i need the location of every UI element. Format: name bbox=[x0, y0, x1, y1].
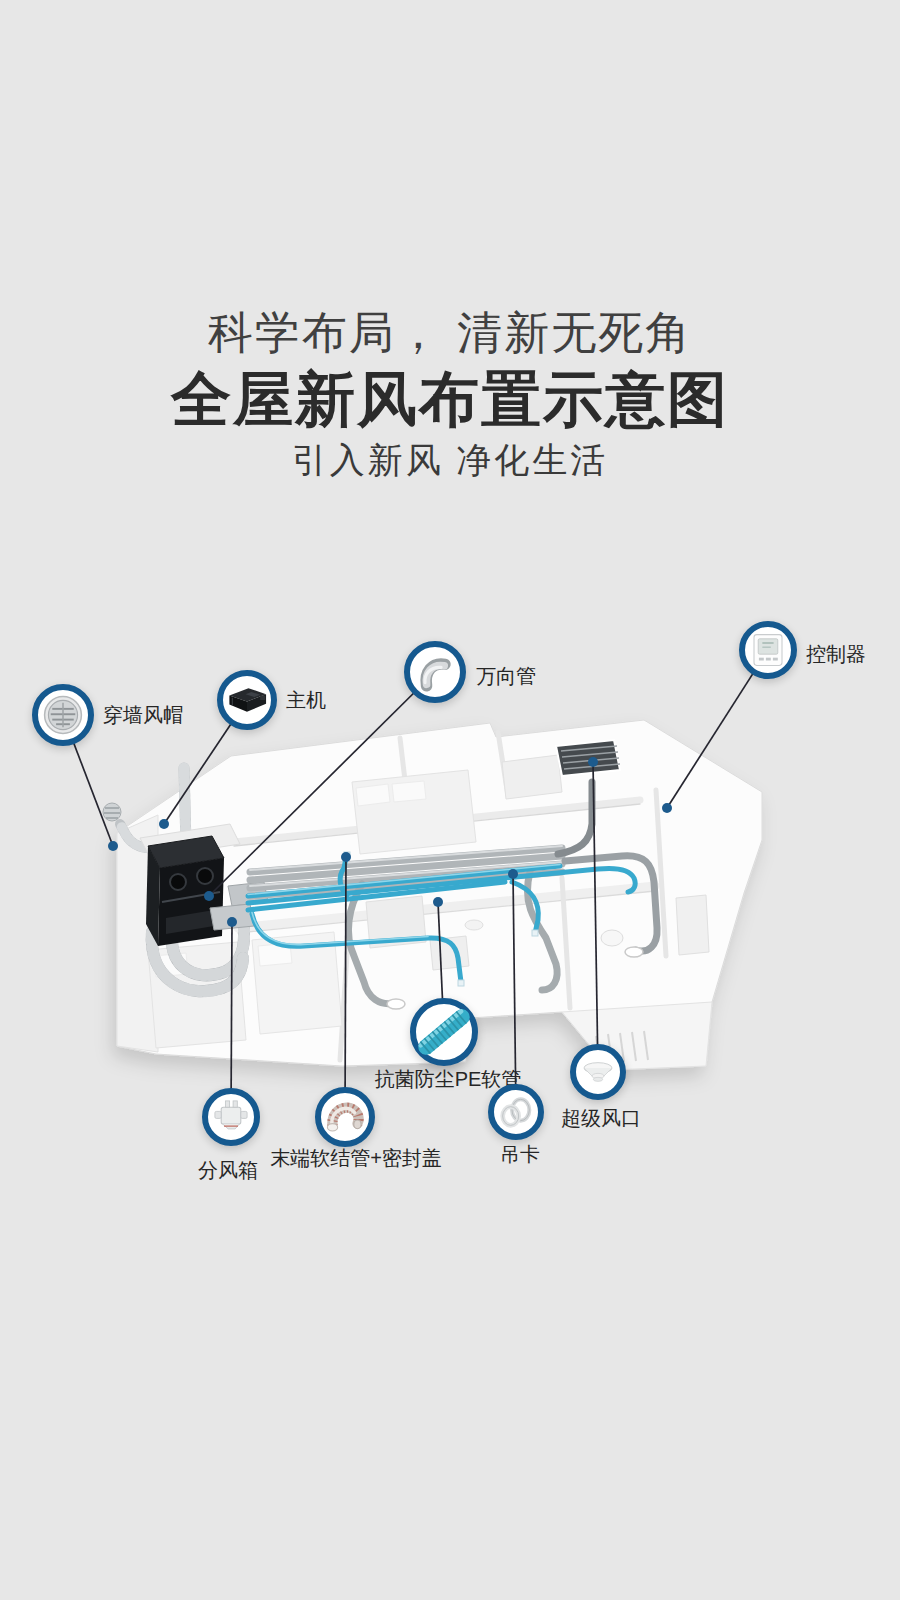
callout-air-box bbox=[202, 1088, 260, 1146]
controller-icon bbox=[747, 629, 789, 671]
promo-page: 科学布局， 清新无死角 全屋新风布置示意图 引入新风 净化生活 bbox=[0, 0, 900, 1600]
callout-label-universal-pipe: 万向管 bbox=[476, 663, 536, 689]
elbow-pipe-icon bbox=[412, 649, 458, 695]
callout-label-main-unit: 主机 bbox=[286, 687, 326, 713]
callout-label-controller: 控制器 bbox=[806, 641, 866, 667]
pe-pipe-icon bbox=[418, 1006, 470, 1058]
air-distribution-box-icon bbox=[210, 1096, 252, 1138]
callout-universal-pipe bbox=[404, 641, 466, 703]
callout-label-air-box: 分风箱 bbox=[98, 1157, 358, 1183]
callout-layer: 穿墙风帽主机万向管控制器抗菌防尘PE软管末端软结管+密封盖分风箱吊卡超级风口 bbox=[0, 0, 900, 1600]
wall-vent-cap-icon bbox=[40, 692, 86, 738]
callout-controller bbox=[739, 621, 797, 679]
callout-end-hose bbox=[315, 1087, 375, 1147]
end-hose-icon bbox=[323, 1095, 367, 1139]
callout-main-unit bbox=[217, 670, 277, 730]
ceiling-outlet-icon bbox=[578, 1052, 618, 1092]
main-unit-icon bbox=[225, 678, 269, 722]
callout-super-outlet bbox=[570, 1044, 626, 1100]
callout-label-pe-pipe: 抗菌防尘PE软管 bbox=[318, 1066, 578, 1092]
callout-label-hanging-clip: 吊卡 bbox=[390, 1141, 650, 1167]
callout-label-super-outlet: 超级风口 bbox=[471, 1105, 731, 1131]
callout-pe-pipe bbox=[410, 998, 478, 1066]
callout-wall-cap bbox=[32, 684, 94, 746]
callout-label-wall-cap: 穿墙风帽 bbox=[103, 702, 183, 728]
